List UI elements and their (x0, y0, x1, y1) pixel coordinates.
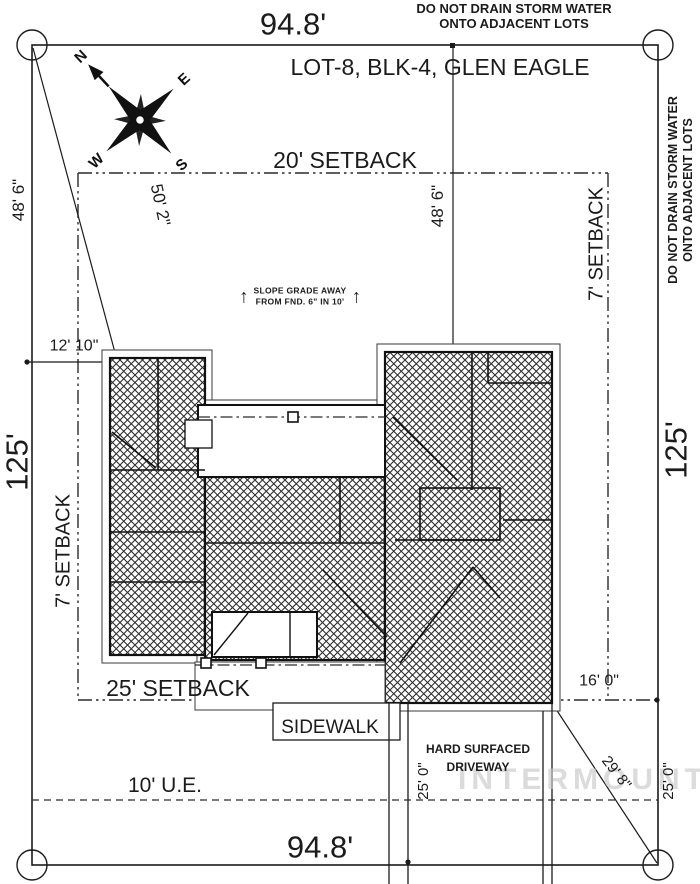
front-setback-label: 20' SETBACK (273, 148, 417, 172)
storm-water-note-top: DO NOT DRAIN STORM WATER ONTO ADJACENT L… (416, 2, 611, 32)
up-arrow-icon: ↑ (239, 288, 249, 307)
slope-grade-line2: FROM FND. 6" IN 10' (254, 297, 347, 308)
up-arrow-icon: ↑ (351, 288, 361, 307)
compass-s: S (172, 155, 191, 174)
slope-grade-text: SLOPE GRADE AWAY FROM FND. 6" IN 10' (254, 286, 347, 309)
lot-width-top-dimension: 94.8' (260, 9, 326, 42)
storm-water-note-side-line2: ONTO ADJACENT LOTS (681, 96, 696, 284)
front-porch (212, 612, 317, 657)
driveway-label: HARD SURFACED DRIVEWAY (426, 740, 530, 776)
side-setback-right-label: 7' SETBACK (587, 187, 608, 301)
sidewalk-label: SIDEWALK (281, 718, 379, 738)
utility-easement-label: 10' U.E. (128, 775, 202, 797)
driveway-depth-right-dimension: 25' 0" (661, 762, 677, 799)
compass-w: W (85, 150, 108, 173)
lot-width-bottom-dimension: 94.8' (287, 832, 353, 865)
dimension-12-10: 12' 10" (50, 339, 99, 356)
storm-water-note-top-line1: DO NOT DRAIN STORM WATER (416, 2, 611, 17)
driveway-depth-left-dimension: 25' 0" (416, 762, 432, 799)
driveway-label-line1: HARD SURFACED (426, 740, 530, 758)
rear-setback-label: 25' SETBACK (106, 676, 250, 700)
slope-grade-line1: SLOPE GRADE AWAY (254, 286, 347, 297)
site-plan-canvas: N E S W (0, 0, 700, 884)
lot-depth-left-dimension: 125' (2, 433, 35, 491)
lot-title: LOT-8, BLK-4, GLEN EAGLE (290, 55, 589, 79)
dimension-16-0: 16' 0" (579, 674, 619, 691)
covered-patio (198, 405, 385, 477)
side-setback-left-label: 7' SETBACK (54, 494, 75, 608)
storm-water-note-side: DO NOT DRAIN STORM WATER ONTO ADJACENT L… (666, 96, 696, 284)
compass-rose-icon: N E S W (26, 6, 235, 217)
lot-depth-right-dimension: 125' (661, 421, 694, 479)
compass-n: N (71, 47, 91, 67)
site-plan-drawing: N E S W INTERMOUNTAIN 94.8' DO NOT DRAIN… (0, 0, 700, 884)
dimension-48-6-left: 48' 6" (10, 179, 28, 221)
dimension-48-6-middle: 48' 6" (429, 185, 447, 227)
storm-water-note-side-line1: DO NOT DRAIN STORM WATER (666, 96, 681, 284)
driveway-label-line2: DRIVEWAY (426, 758, 530, 776)
slope-grade-note: ↑ SLOPE GRADE AWAY FROM FND. 6" IN 10' ↑ (239, 286, 361, 309)
compass-e: E (175, 70, 194, 89)
storm-water-note-top-line2: ONTO ADJACENT LOTS (416, 17, 611, 32)
